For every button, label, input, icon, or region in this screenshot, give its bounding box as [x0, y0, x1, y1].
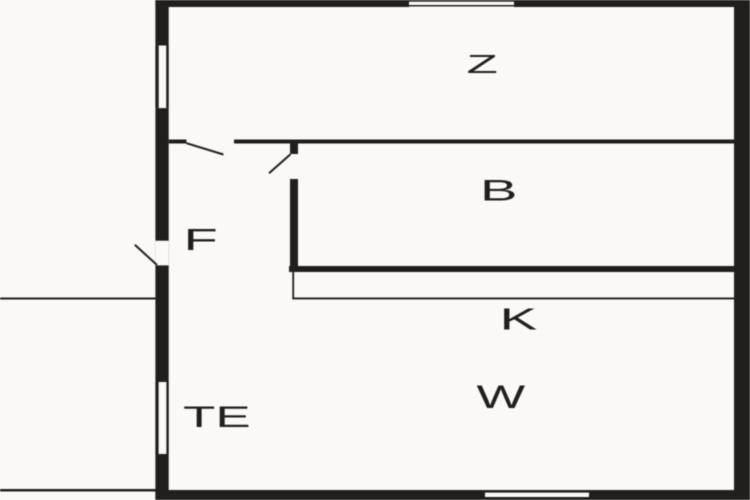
svg-text:TE: TE — [183, 401, 251, 434]
svg-text:B: B — [480, 174, 517, 207]
svg-text:W: W — [477, 379, 526, 415]
svg-text:K: K — [500, 302, 538, 336]
svg-text:Z: Z — [467, 49, 498, 79]
svg-text:F: F — [184, 223, 218, 257]
